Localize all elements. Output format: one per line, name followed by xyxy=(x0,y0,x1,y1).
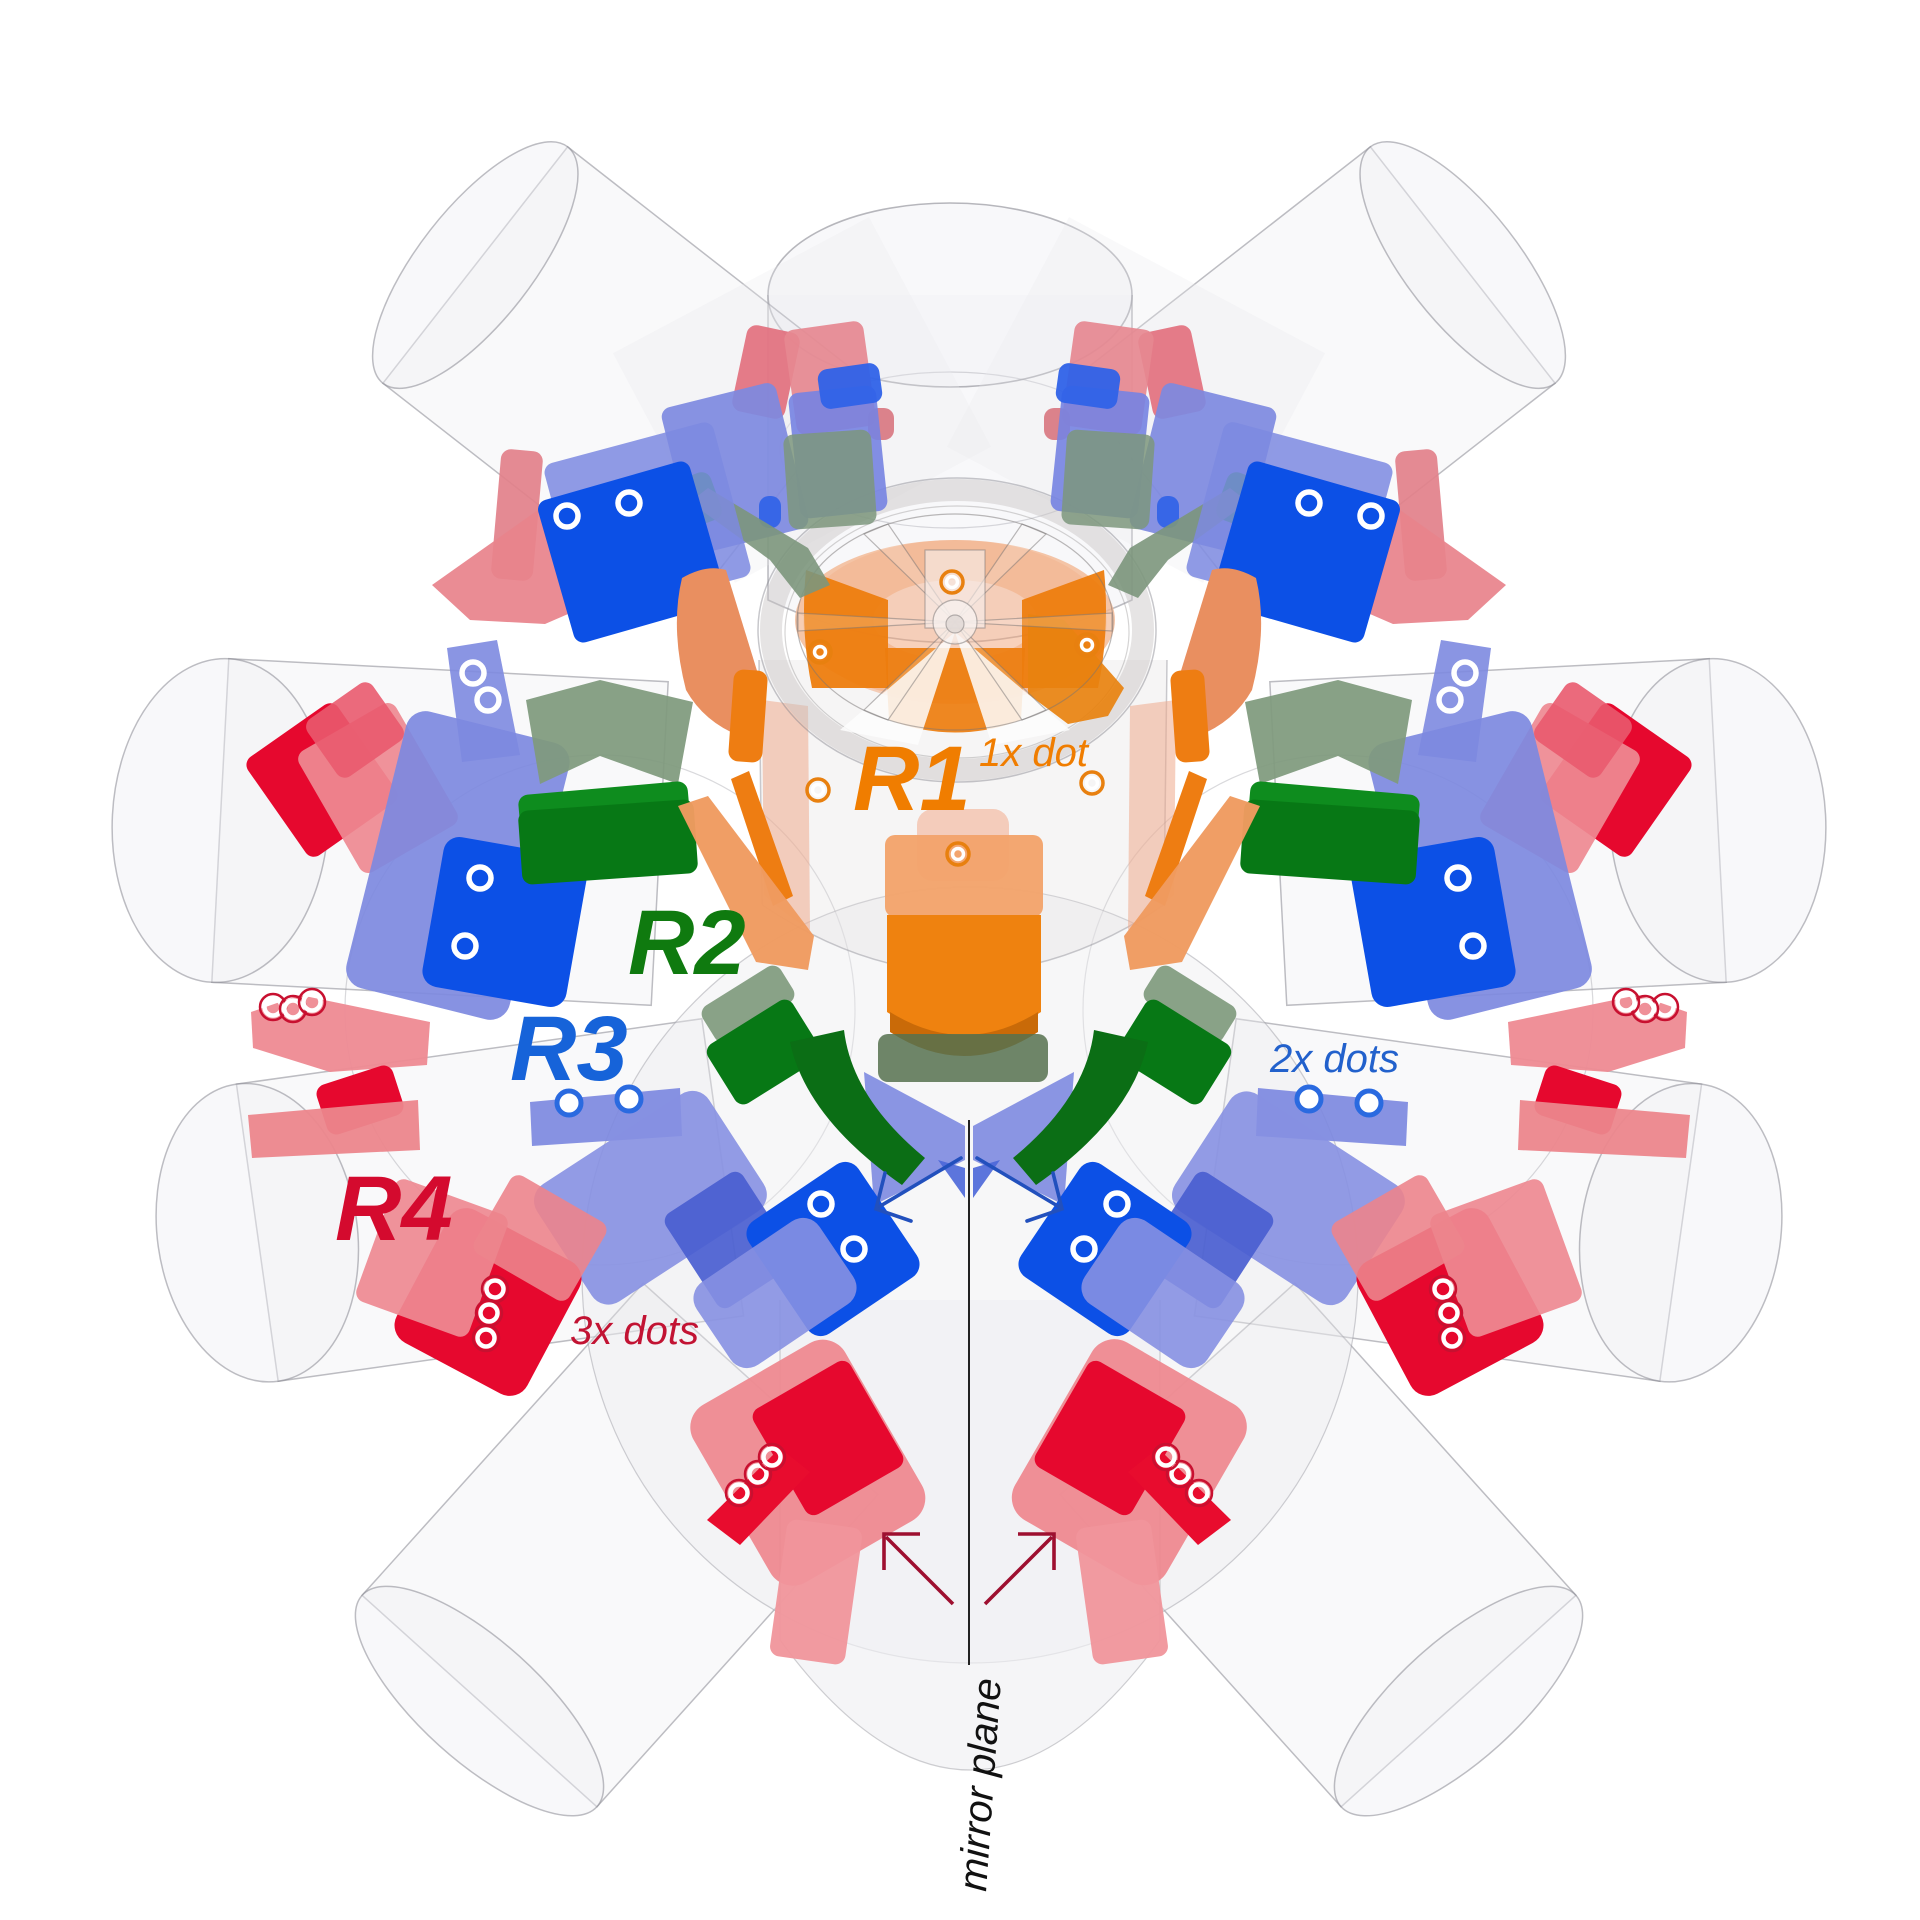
svg-text:1x dot: 1x dot xyxy=(979,731,1090,775)
svg-text:3x dots: 3x dots xyxy=(570,1309,699,1353)
svg-text:R3: R3 xyxy=(510,998,628,1100)
svg-text:R2: R2 xyxy=(628,892,746,994)
svg-text:2x dots: 2x dots xyxy=(1269,1037,1399,1081)
svg-text:R1: R1 xyxy=(853,728,971,830)
svg-text:R4: R4 xyxy=(335,1158,453,1260)
